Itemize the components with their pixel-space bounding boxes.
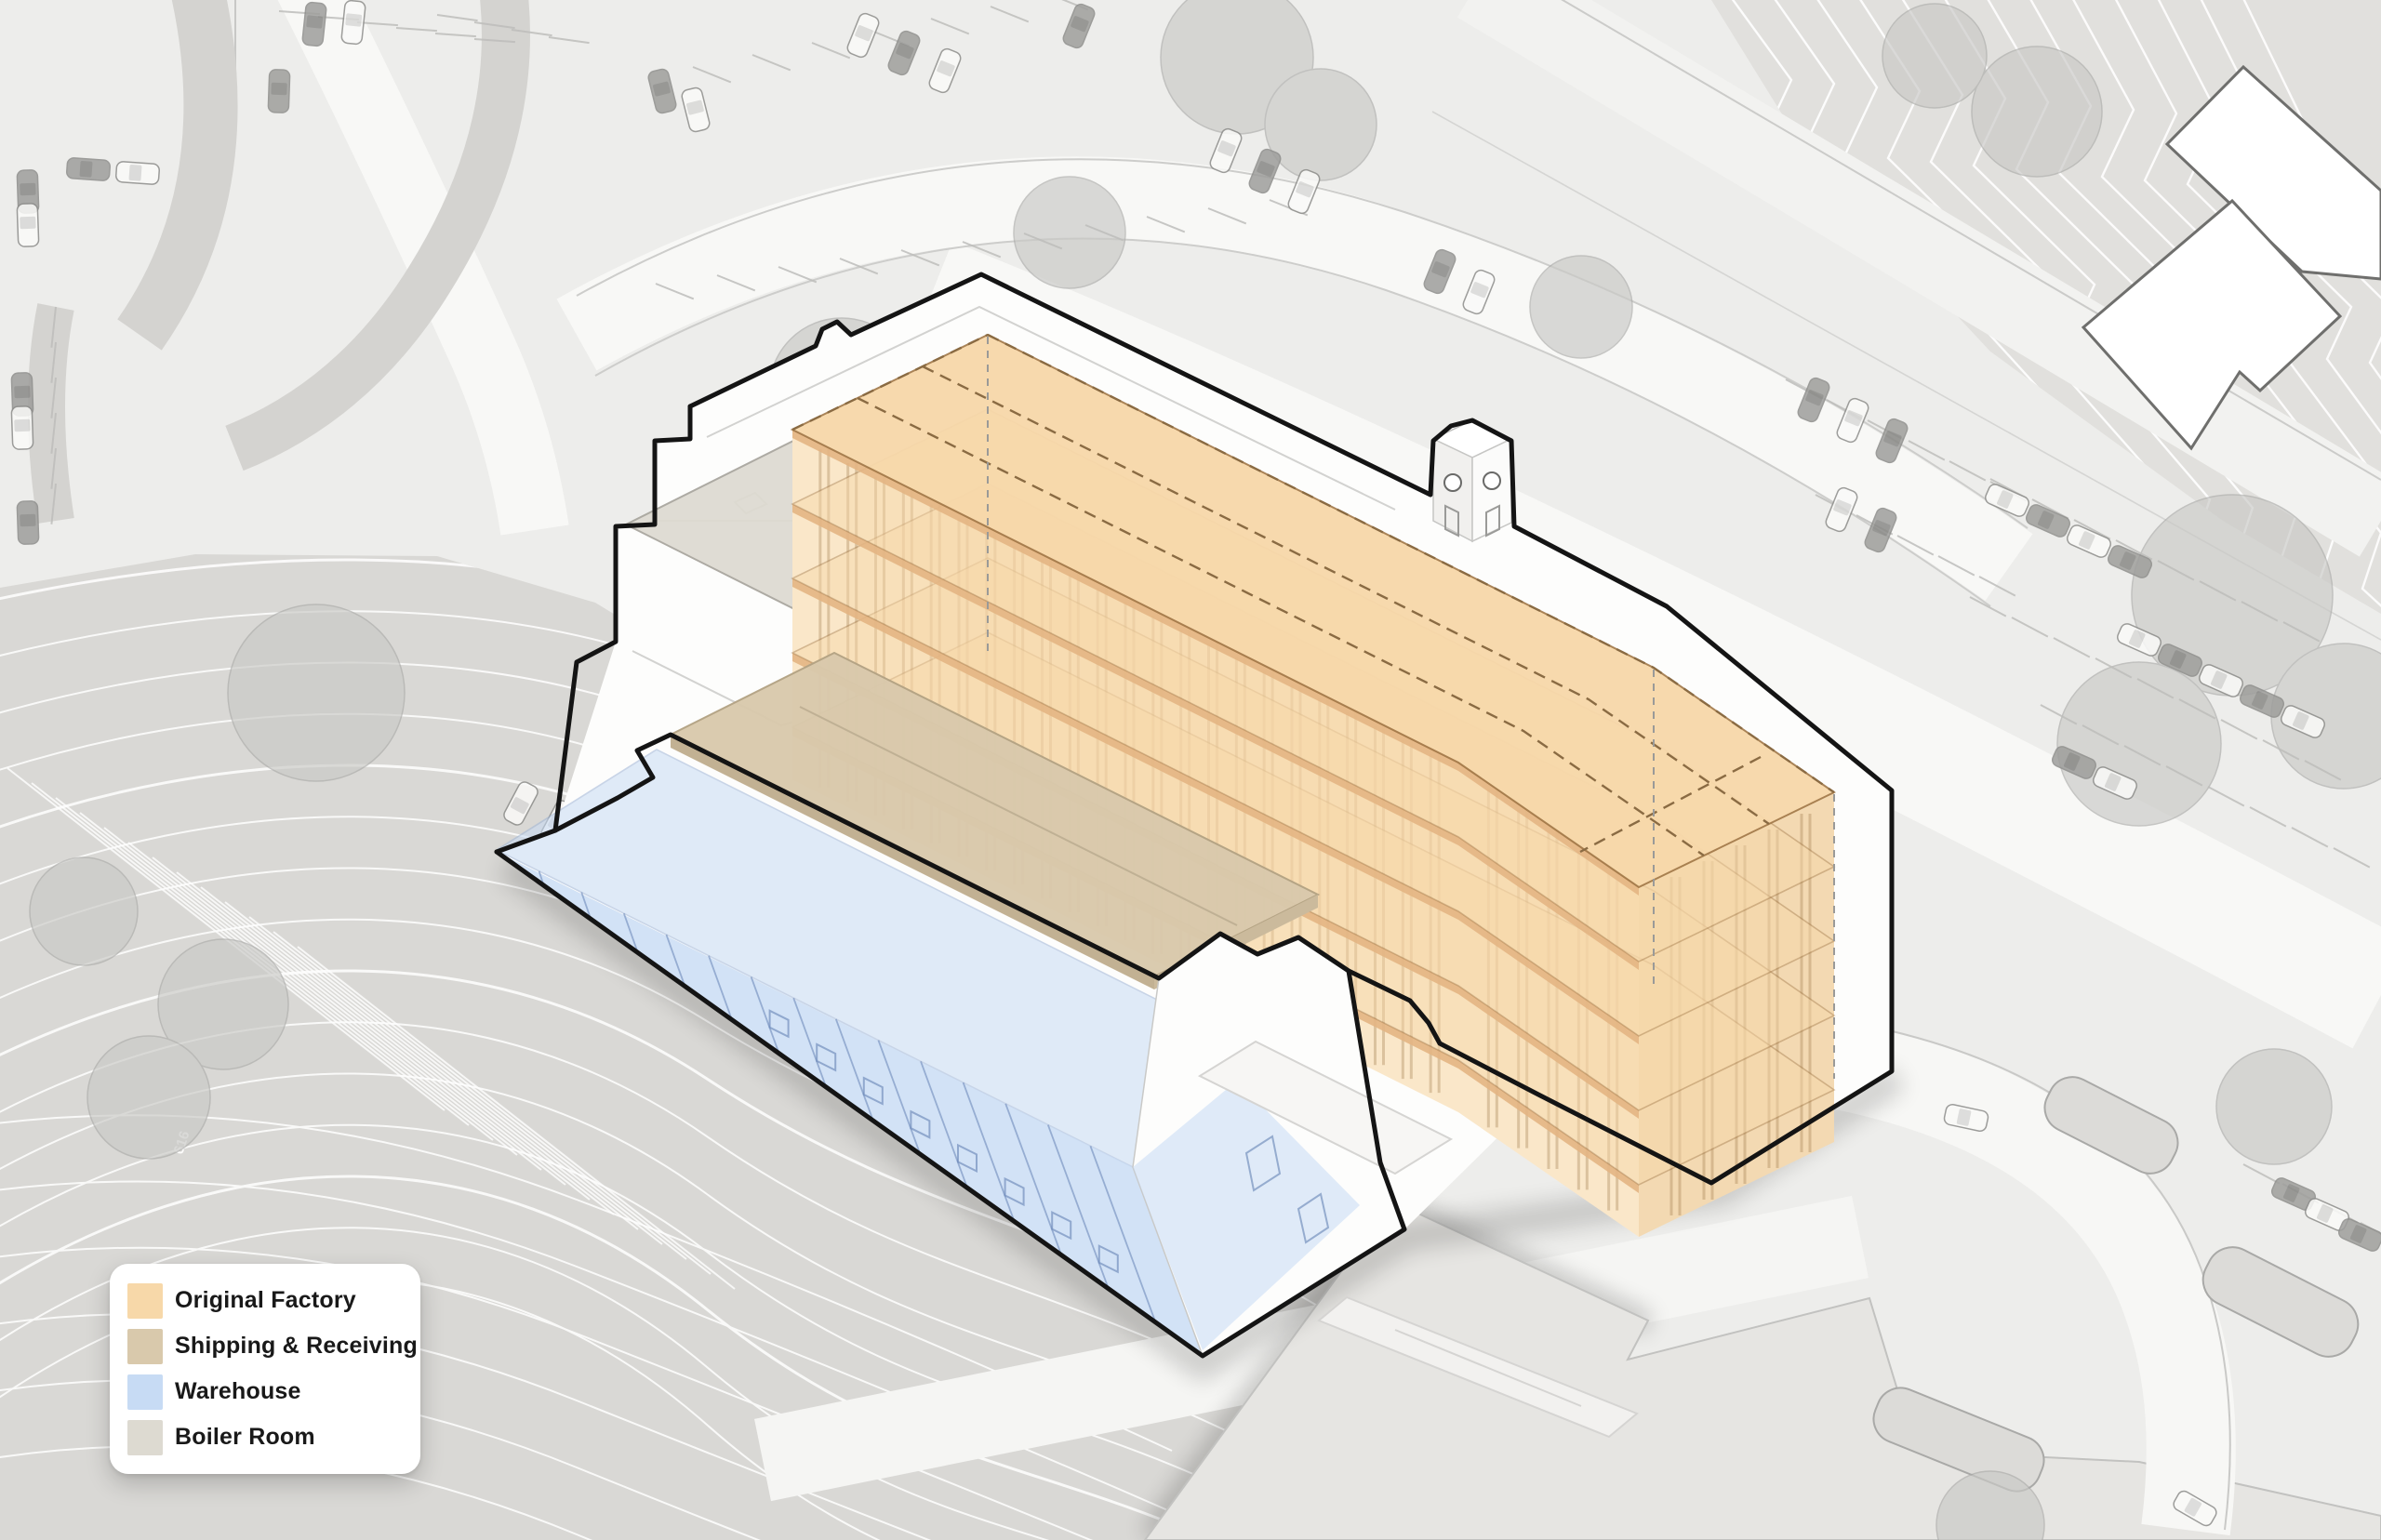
- legend-row-warehouse: Warehouse: [127, 1374, 420, 1410]
- clock-face-right: [1483, 472, 1500, 489]
- legend-row-original-factory: Original Factory: [127, 1283, 420, 1319]
- legend-swatch-shipping-icon: [127, 1329, 163, 1364]
- clock-tower: [1433, 420, 1511, 541]
- legend-row-boiler-room: Boiler Room: [127, 1420, 420, 1455]
- legend-label-boiler-room: Boiler Room: [175, 1424, 315, 1451]
- legend-label-original-factory: Original Factory: [175, 1287, 356, 1314]
- legend-row-shipping-receiving: Shipping & Receiving: [127, 1329, 420, 1364]
- legend-label-shipping-receiving: Shipping & Receiving: [175, 1333, 418, 1360]
- legend-swatch-boiler-icon: [127, 1420, 163, 1455]
- legend-swatch-factory-icon: [127, 1283, 163, 1319]
- legend-card: Original Factory Shipping & Receiving Wa…: [110, 1264, 420, 1474]
- legend-label-warehouse: Warehouse: [175, 1378, 301, 1405]
- clock-face-left: [1444, 474, 1461, 491]
- axonometric-site-diagram: 616: [0, 0, 2381, 1540]
- legend-swatch-warehouse-icon: [127, 1374, 163, 1410]
